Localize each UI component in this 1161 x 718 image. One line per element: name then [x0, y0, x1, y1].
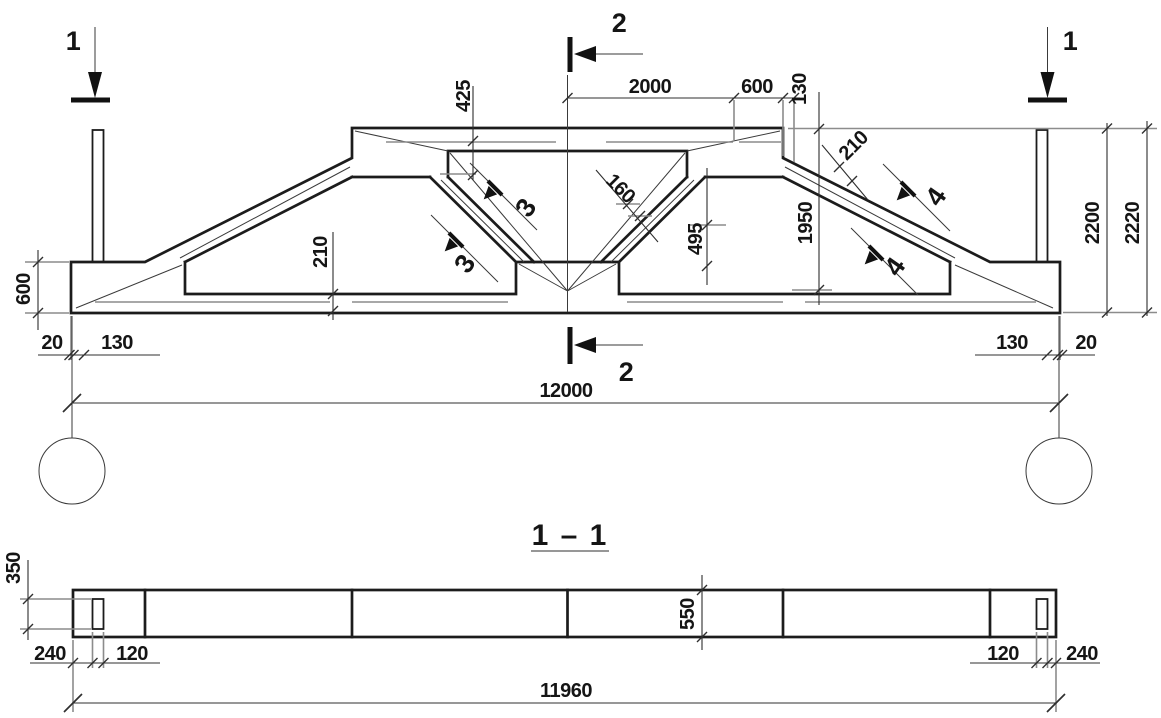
dim-550: 550: [677, 598, 699, 630]
dim-210-chord: 210: [310, 236, 332, 268]
truss-outer-profile: [71, 128, 1060, 313]
section-1-1-view: 1 – 1 350 240 120 550 120 240 11960: [3, 519, 1100, 712]
dim-425: 425: [453, 80, 475, 112]
arrow-down-icon: [88, 72, 102, 98]
dim-130-top: 130: [789, 73, 811, 105]
arrow-left-icon: [574, 46, 596, 62]
plan-slot-right: [1037, 599, 1048, 629]
dim-20-right: 20: [1075, 332, 1097, 354]
section-marker-3-upper: [477, 181, 502, 206]
dim-130-right: 130: [996, 332, 1028, 354]
plan-slot-left: [93, 599, 104, 629]
dim-120-left: 120: [116, 643, 148, 665]
rebar-lines: [95, 142, 1036, 302]
section-label-3-upper: 3: [509, 193, 542, 222]
section-label-4-lower: 4: [878, 252, 911, 281]
dim-20-left: 20: [41, 332, 63, 354]
grid-bubble-right: [1026, 438, 1092, 504]
section-view-title: 1 – 1: [532, 519, 609, 552]
arrow-down-icon: [1041, 72, 1055, 98]
right-anchor-post: [1037, 130, 1048, 262]
left-anchor-post: [93, 130, 104, 262]
dim-350: 350: [3, 552, 25, 584]
section-marker-2-top: [570, 37, 643, 72]
dim-11960: 11960: [540, 680, 592, 702]
section-label-1-right: 1: [1063, 26, 1078, 56]
dim-600-left: 600: [13, 273, 35, 305]
technical-drawing-sheet: 1 1 2 2 3 3 4 4 2000 600 130 425 160 495…: [0, 0, 1161, 718]
plan-division-lines: [145, 590, 990, 637]
section-marker-4-lower: [858, 246, 883, 271]
section-marker-1-right: [1028, 27, 1067, 100]
dim-1950: 1950: [795, 201, 817, 244]
dim-2000: 2000: [629, 76, 672, 98]
section-label-3-lower: 3: [448, 249, 481, 278]
dim-240-right: 240: [1066, 643, 1098, 665]
section-label-4-upper: 4: [919, 182, 952, 211]
dim-600-top: 600: [741, 76, 773, 98]
dim-210-slope: 210: [835, 126, 873, 164]
dim-495: 495: [685, 223, 707, 255]
dimension-ticks: [33, 93, 1152, 360]
elevation-view: 1 1 2 2 3 3 4 4 2000 600 130 425 160 495…: [13, 8, 1157, 504]
dim-130-left: 130: [101, 332, 133, 354]
arrow-left-icon: [574, 337, 596, 353]
extension-lines: [25, 100, 1157, 360]
section-label-2-top: 2: [612, 8, 627, 38]
dim-240-left: 240: [34, 643, 66, 665]
section-marker-4-upper: [890, 182, 915, 207]
plan-dimension-ticks: [23, 585, 1061, 668]
dim-120-right: 120: [987, 643, 1019, 665]
section-label-1-left: 1: [66, 26, 81, 56]
section-label-2-bottom: 2: [619, 357, 634, 387]
dim-160: 160: [601, 170, 639, 208]
dim-2220: 2220: [1122, 201, 1144, 244]
plan-outline: [73, 590, 1056, 637]
dim-2200: 2200: [1082, 201, 1104, 244]
grid-axis-lines: [72, 316, 1059, 438]
dim-12000: 12000: [539, 380, 592, 402]
plan-extension-lines: [20, 599, 1056, 712]
grid-bubble-left: [39, 438, 105, 504]
truss-drawing-svg: 1 1 2 2 3 3 4 4 2000 600 130 425 160 495…: [0, 0, 1161, 718]
